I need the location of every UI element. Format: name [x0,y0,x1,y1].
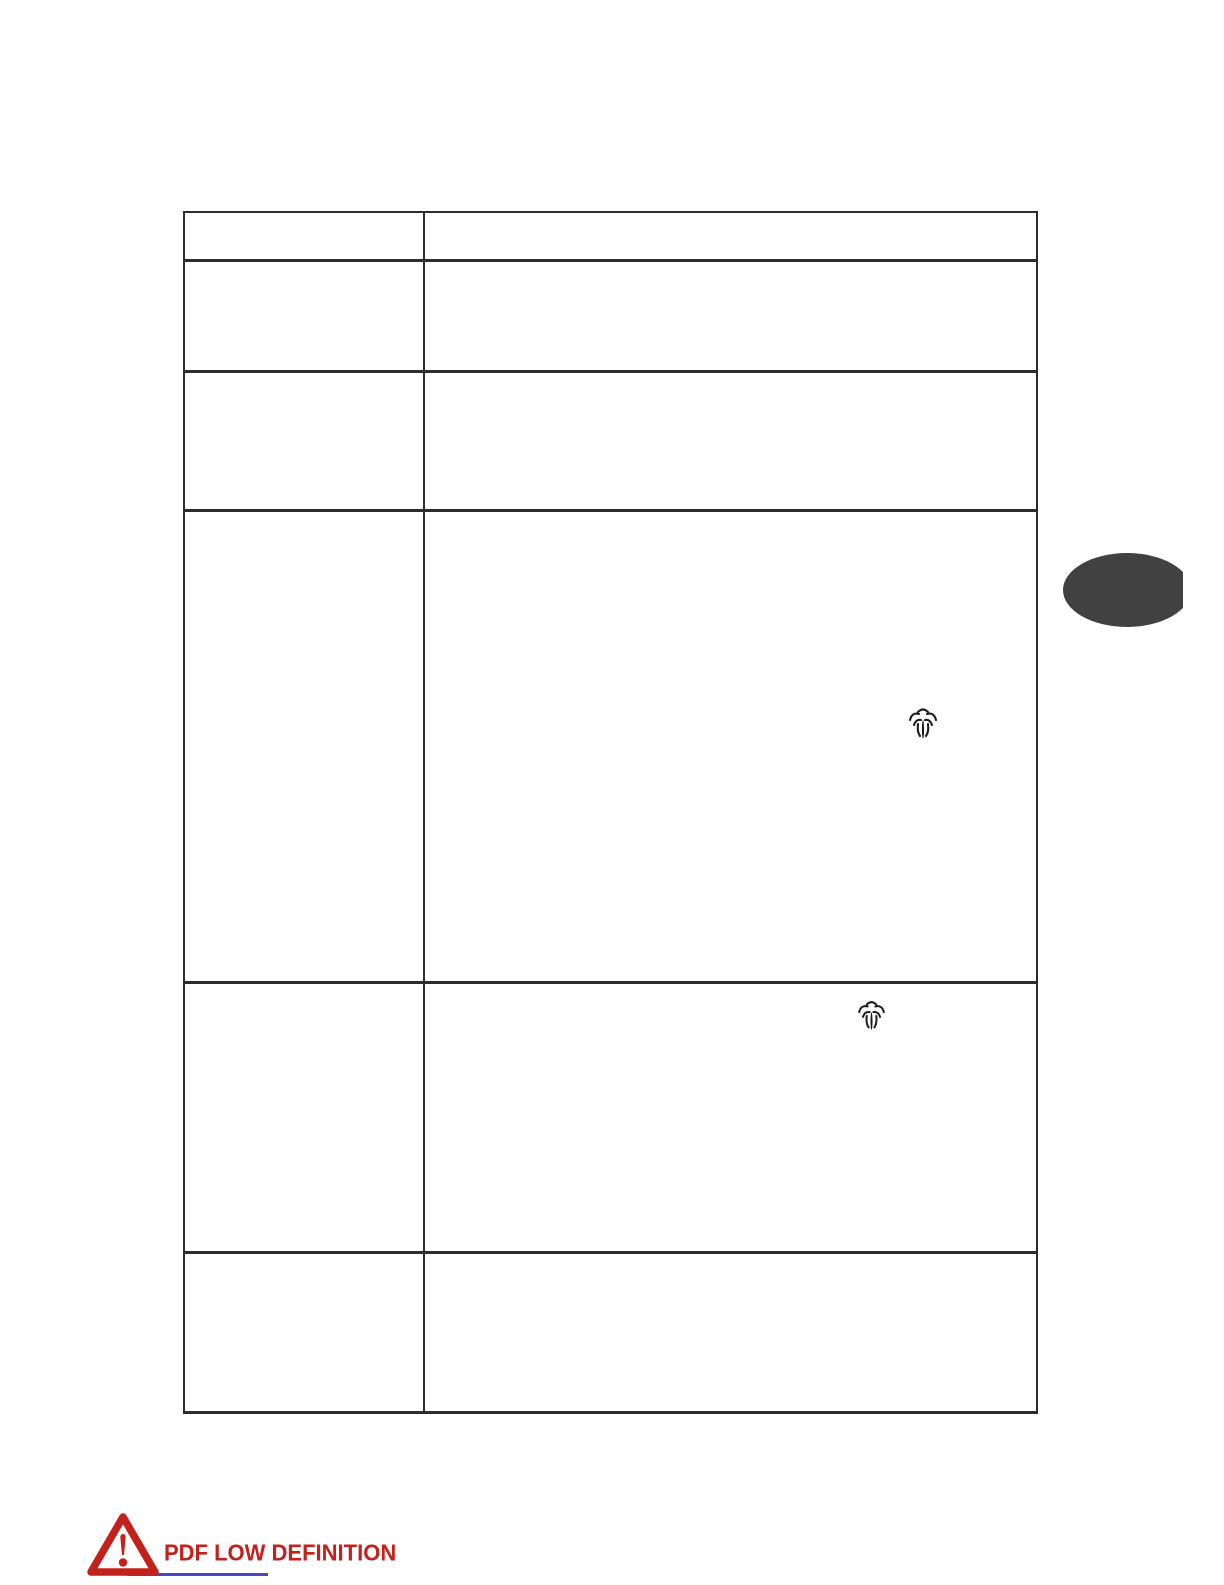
table-cell [425,213,1036,259]
table-row [185,1254,1036,1411]
table-cell [425,1254,1036,1411]
warning-triangle-icon [84,1510,162,1585]
steam-burst-icon [906,703,940,743]
table-cell [185,373,425,509]
table-cell [425,262,1036,370]
table-row [185,373,1036,512]
low-definition-label: PDF LOW DEFINITION [164,1539,396,1566]
table-cell [185,984,425,1251]
troubleshooting-table [183,211,1038,1414]
table-cell [185,1254,425,1411]
table-cell [185,213,425,259]
table-row [185,512,1036,984]
table-cell [185,262,425,370]
table-row [185,213,1036,262]
table-cell [425,373,1036,509]
table-cell [425,984,1036,1251]
table-cell [185,512,425,981]
table-row [185,984,1036,1254]
table-cell [425,512,1036,981]
page-edge-tab-ellipse [1063,553,1183,627]
page-edge-tab [1063,553,1183,627]
table-row [185,262,1036,373]
steam-burst-icon [855,996,888,1034]
